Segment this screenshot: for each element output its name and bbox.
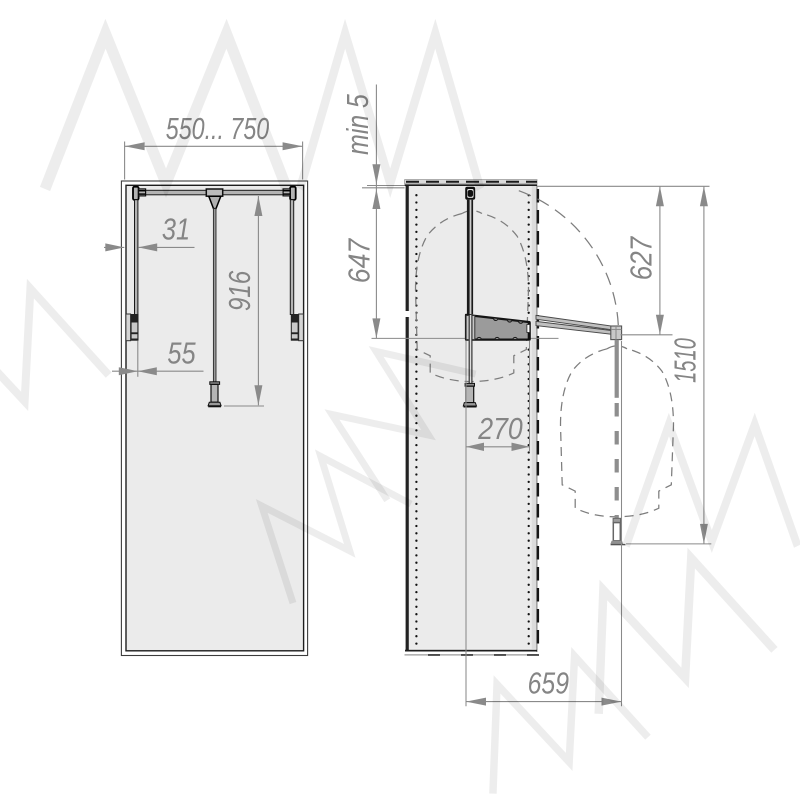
svg-text:916: 916 (222, 270, 257, 311)
svg-text:1510: 1510 (667, 338, 703, 383)
svg-text:659: 659 (528, 666, 570, 700)
svg-text:31: 31 (162, 212, 190, 247)
svg-text:55: 55 (167, 336, 195, 371)
svg-text:647: 647 (343, 238, 377, 283)
svg-text:627: 627 (625, 236, 660, 280)
svg-text:270: 270 (477, 412, 522, 446)
